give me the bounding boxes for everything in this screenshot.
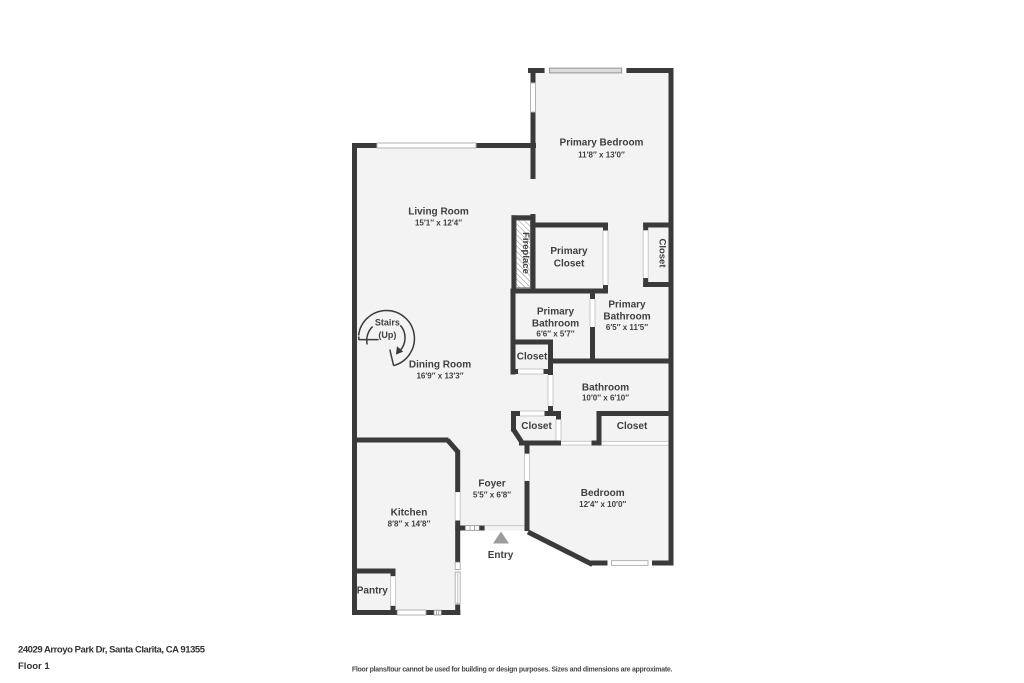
svg-text:Closet: Closet xyxy=(517,352,548,363)
svg-text:Primary Bedroom: Primary Bedroom xyxy=(560,138,644,149)
svg-text:Floor 1: Floor 1 xyxy=(18,661,50,672)
svg-text:10′0″ x 6′10″: 10′0″ x 6′10″ xyxy=(582,393,629,402)
svg-text:Dining Room: Dining Room xyxy=(409,360,471,371)
svg-text:Stairs: Stairs xyxy=(375,318,400,328)
svg-text:Pantry: Pantry xyxy=(357,586,389,597)
svg-text:Primary: Primary xyxy=(608,300,646,311)
svg-text:Bathroom: Bathroom xyxy=(532,319,579,330)
svg-text:6′5″ x 11′5″: 6′5″ x 11′5″ xyxy=(606,323,648,332)
svg-text:Floor plans/tour cannot be use: Floor plans/tour cannot be used for buil… xyxy=(352,667,673,674)
svg-text:Fireplace: Fireplace xyxy=(520,232,531,274)
svg-text:15′1″ x 12′4″: 15′1″ x 12′4″ xyxy=(415,219,462,228)
svg-text:Bathroom: Bathroom xyxy=(603,312,650,323)
svg-text:Living Room: Living Room xyxy=(408,207,469,218)
svg-text:(Up): (Up) xyxy=(378,330,396,340)
svg-text:Bathroom: Bathroom xyxy=(582,383,629,394)
svg-text:8′8″ x 14′8″: 8′8″ x 14′8″ xyxy=(388,520,431,529)
svg-text:24029 Arroyo Park Dr, Santa Cl: 24029 Arroyo Park Dr, Santa Clarita, CA … xyxy=(18,645,206,656)
svg-text:Bedroom: Bedroom xyxy=(581,488,625,499)
svg-text:11′8″ x 13′0″: 11′8″ x 13′0″ xyxy=(578,151,625,160)
svg-text:Primary: Primary xyxy=(537,307,575,318)
svg-text:6′6″ x 5′7″: 6′6″ x 5′7″ xyxy=(536,330,574,339)
svg-text:Kitchen: Kitchen xyxy=(391,508,428,519)
svg-text:Closet: Closet xyxy=(554,259,585,270)
svg-text:Entry: Entry xyxy=(488,550,514,561)
svg-text:5′5″ x 6′8″: 5′5″ x 6′8″ xyxy=(473,490,511,499)
svg-text:Closet: Closet xyxy=(657,238,668,268)
svg-text:Closet: Closet xyxy=(521,421,552,432)
svg-text:Primary: Primary xyxy=(550,246,588,257)
svg-text:12′4″ x 10′0″: 12′4″ x 10′0″ xyxy=(579,500,626,509)
svg-text:Closet: Closet xyxy=(617,421,648,432)
svg-text:16′9″ x 13′3″: 16′9″ x 13′3″ xyxy=(416,372,463,381)
svg-text:Foyer: Foyer xyxy=(478,479,505,490)
